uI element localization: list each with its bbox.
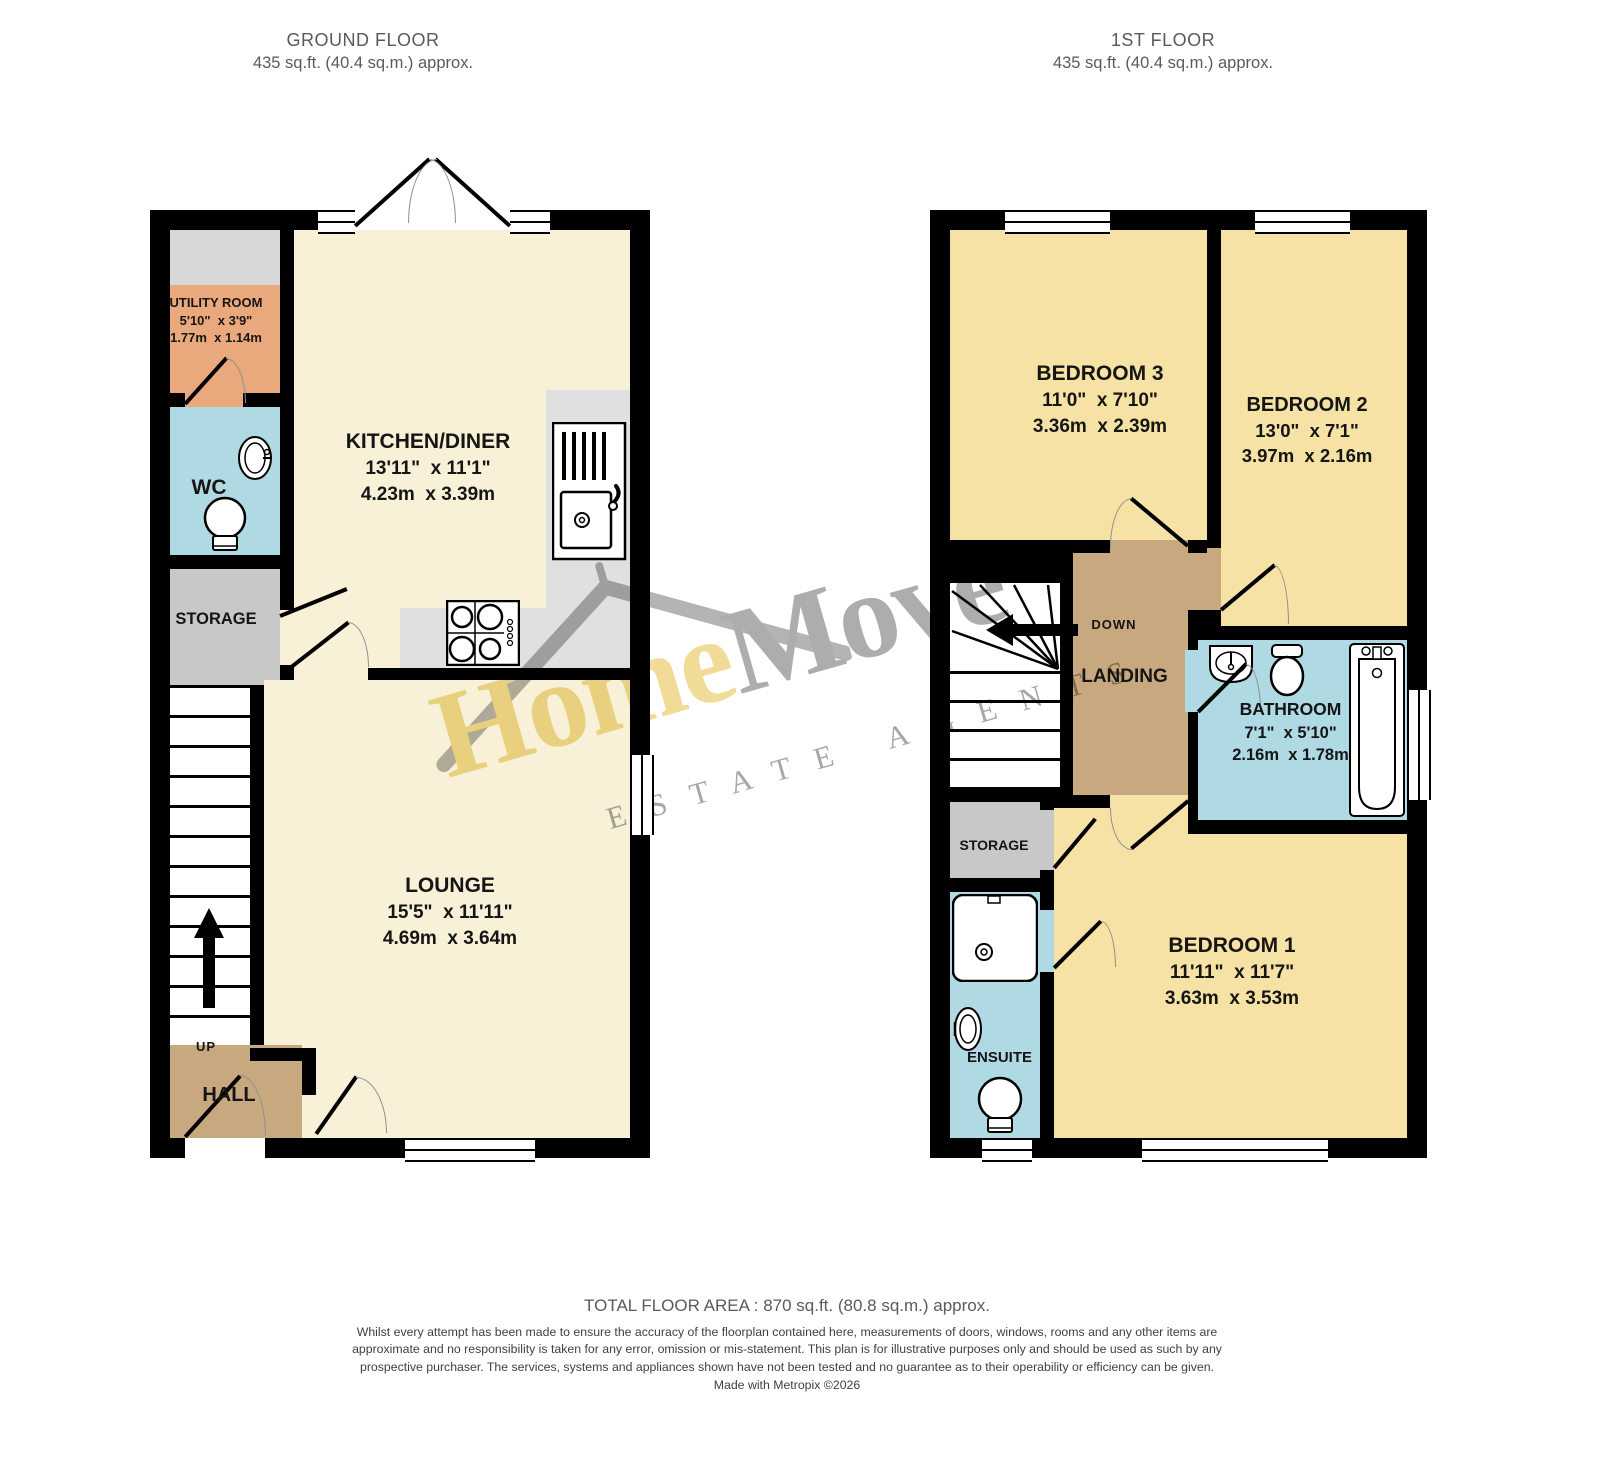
landing-label: LANDING [1062,664,1187,690]
shower-icon [952,894,1038,982]
room-dims-metric: 3.36m x 2.39m [950,414,1250,440]
floorplan-page: GROUND FLOOR 435 sq.ft. (40.4 sq.m.) app… [0,0,1600,1459]
room-dims-imperial: 11'11" x 11'7" [1082,960,1382,986]
disclaimer-text: Whilst every attempt has been made to en… [347,1324,1227,1376]
stairs-down-treads [950,671,1060,787]
ground-floor-header: GROUND FLOOR 435 sq.ft. (40.4 sq.m.) app… [113,30,613,73]
room-dims-imperial: 5'10" x 3'9" [152,312,280,330]
up-label: UP [184,1038,228,1056]
footer: TOTAL FLOOR AREA : 870 sq.ft. (80.8 sq.m… [347,1296,1227,1392]
window [318,210,355,234]
hall-step-wall-side [302,1061,316,1095]
ensuite-sink-icon [952,1004,984,1054]
storage-doorway-gf [280,610,294,665]
room-dims-imperial: 11'0" x 7'10" [950,388,1250,414]
bedroom1-doorway [1110,795,1188,808]
window [630,755,654,835]
ensuite-label: ENSUITE [952,1048,1047,1068]
wc-label: WC [174,474,244,502]
bathroom-toilet-icon [1266,643,1308,697]
room-dims-metric: 4.23m x 3.39m [278,482,578,508]
room-dims-metric: 4.69m x 3.64m [300,926,600,952]
first-floor-title: 1ST FLOOR [913,30,1413,51]
ensuite-doorway [1040,910,1054,972]
room-name: UTILITY ROOM [152,294,280,312]
kitchen-label: KITCHEN/DINER 13'11" x 11'1" 4.23m x 3.3… [278,428,578,508]
room-dims-metric: 3.97m x 2.16m [1207,444,1407,469]
room-name: LOUNGE [300,872,600,900]
room-dims-imperial: 15'5" x 11'11" [300,900,600,926]
stairs-down-arrow [986,614,1013,646]
bedroom2-label: BEDROOM 2 13'0" x 7'1" 3.97m x 2.16m [1207,392,1407,469]
room-name: BATHROOM [1198,698,1383,722]
room-dims-metric: 1.77m x 1.14m [152,329,280,347]
stairs-up-arrow-shaft [203,936,215,1008]
ensuite-toilet-icon [976,1076,1024,1134]
room-name: BEDROOM 2 [1207,392,1407,419]
hall-step-wall-top [250,1048,316,1061]
bedroom1-label: BEDROOM 1 11'11" x 11'7" 3.63m x 3.53m [1082,932,1382,1012]
door-swing-arc [408,159,437,223]
credit-text: Made with Metropix ©2026 [347,1378,1227,1392]
window [1255,210,1350,234]
wc-toilet-icon [202,496,248,552]
room-dims-metric: 2.16m x 1.78m [1198,744,1383,766]
front-door-opening [185,1138,265,1158]
bathroom-label: BATHROOM 7'1" x 5'10" 2.16m x 1.78m [1198,698,1383,766]
window [405,1138,535,1162]
room-dims-metric: 3.63m x 3.53m [1082,986,1382,1012]
storage-label-gf: STORAGE [160,608,272,630]
utility-room-label: UTILITY ROOM 5'10" x 3'9" 1.77m x 1.14m [152,294,280,347]
room-name: BEDROOM 1 [1082,932,1382,960]
first-floor-area: 435 sq.ft. (40.4 sq.m.) approx. [913,54,1413,73]
down-label: DOWN [1082,616,1146,634]
room-dims-imperial: 13'11" x 11'1" [278,456,578,482]
total-floor-area: TOTAL FLOOR AREA : 870 sq.ft. (80.8 sq.m… [347,1296,1227,1316]
ground-floor-title: GROUND FLOOR [113,30,613,51]
lounge-label: LOUNGE 15'5" x 11'11" 4.69m x 3.64m [300,872,600,952]
window [1142,1138,1328,1162]
first-floor-header: 1ST FLOOR 435 sq.ft. (40.4 sq.m.) approx… [913,30,1413,73]
hob-icon [446,600,520,666]
window [982,1138,1032,1162]
storage-label-ff: STORAGE [944,836,1044,855]
room-name: BEDROOM 3 [950,360,1250,388]
bedroom2-doorway [1207,548,1221,610]
bedroom3-label: BEDROOM 3 11'0" x 7'10" 3.36m x 2.39m [950,360,1250,440]
room-name: KITCHEN/DINER [278,428,578,456]
ground-floor-plan: UTILITY ROOM 5'10" x 3'9" 1.77m x 1.14m … [150,210,650,1158]
window [1407,690,1431,800]
first-floor-plan: BEDROOM 3 11'0" x 7'10" 3.36m x 2.39m BE… [930,210,1427,1158]
window [1005,210,1110,234]
room-dims-imperial: 7'1" x 5'10" [1198,722,1383,744]
room-dims-imperial: 13'0" x 7'1" [1207,419,1407,444]
stairs-up-arrow [194,908,224,938]
stairs-down-arrow-shaft [1012,624,1078,636]
window [510,210,550,234]
ground-floor-area: 435 sq.ft. (40.4 sq.m.) approx. [113,54,613,73]
hall-label: HALL [174,1082,284,1109]
utility-recess [170,230,280,285]
